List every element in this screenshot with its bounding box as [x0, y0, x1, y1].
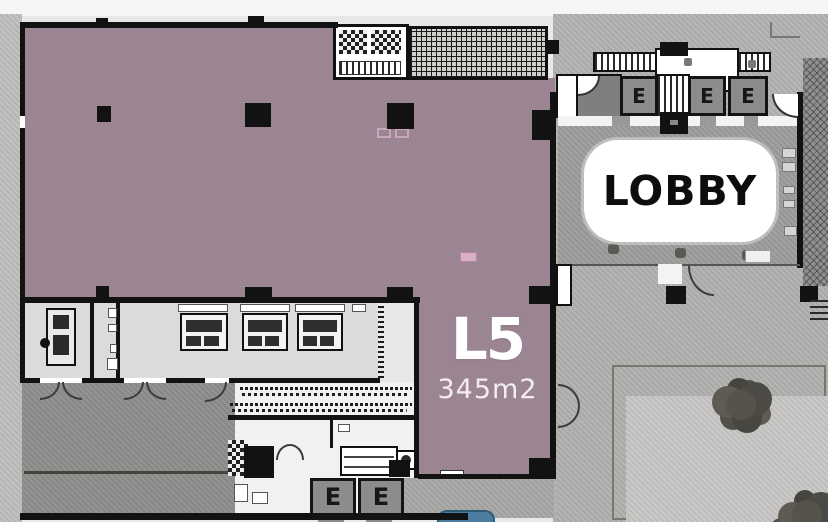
unit-highlight-marker: [460, 252, 477, 262]
skylight-grille: [408, 26, 548, 80]
shelf-unit: [110, 344, 117, 353]
column: [97, 106, 111, 122]
wall-segment: [551, 286, 556, 478]
elevator-cab: E: [728, 76, 768, 116]
column: [245, 287, 272, 302]
column: [666, 286, 686, 304]
boundary-wall-hatch: [803, 58, 828, 286]
bench: [783, 200, 795, 208]
elevator-label: E: [632, 84, 646, 108]
floor-plan: E E L5 345m2 E: [0, 0, 828, 522]
shelf-unit: [108, 308, 117, 318]
wall-segment: [414, 302, 419, 478]
elevator-cab: E: [310, 478, 356, 516]
wall-segment: [90, 302, 94, 378]
steps: [810, 300, 828, 320]
workbench: [180, 313, 228, 351]
wall-segment: [20, 513, 235, 520]
stair-treads: [339, 61, 401, 75]
equipment-tag: [240, 304, 290, 312]
wall-segment: [660, 42, 688, 56]
shelf-unit: [107, 358, 118, 370]
wall-segment: [228, 513, 468, 520]
bench: [782, 148, 796, 158]
equipment-tag: [178, 304, 228, 312]
plant-marker: [748, 60, 756, 68]
elevator-label: E: [325, 483, 341, 511]
elevator-cab: E: [688, 76, 726, 116]
lobby-label-pill: LOBBY: [584, 140, 776, 242]
wall-segment: [744, 116, 758, 126]
column: [248, 16, 264, 25]
tree-icon: [726, 390, 756, 420]
equipment-cabinet: [46, 308, 76, 366]
unit-area: 345m2: [437, 374, 537, 405]
annotation-text-column: [378, 306, 384, 378]
wall-segment: [20, 297, 420, 303]
lobby-seating: [745, 250, 771, 263]
column: [387, 287, 413, 302]
wall-segment: [20, 22, 25, 382]
elevator-cab: E: [620, 76, 658, 116]
workbench: [297, 313, 343, 351]
column: [96, 286, 109, 302]
bench: [782, 162, 796, 172]
elevator-cab: E: [358, 478, 404, 516]
elevator-door-block: [660, 112, 688, 134]
column: [389, 460, 410, 477]
column: [545, 40, 559, 54]
column: [96, 18, 108, 27]
unit-l5-area-north[interactable]: [22, 24, 333, 302]
unit-fixture-outline: [395, 128, 409, 138]
wall-segment: [612, 116, 630, 126]
fixture: [338, 424, 350, 432]
pipe-fitting: [40, 338, 50, 348]
door-opening: [658, 264, 682, 284]
wall-segment: [330, 420, 333, 448]
unit-fixture-outline: [377, 128, 391, 138]
elevator-label: E: [700, 84, 714, 108]
wall-segment: [228, 415, 418, 420]
wall-segment: [20, 22, 338, 28]
annotation-text-row: [240, 386, 412, 397]
column: [387, 103, 414, 129]
door-opening: [20, 116, 25, 128]
step-outline: [770, 22, 800, 38]
bench: [784, 226, 797, 236]
fixture: [252, 492, 268, 504]
counter-block: [244, 446, 274, 478]
fixture: [234, 484, 248, 502]
ramp-edge-line: [24, 471, 233, 474]
workbench: [242, 313, 288, 351]
unit-name: L5: [451, 310, 524, 368]
lobby-label: LOBBY: [603, 167, 757, 215]
column-dot: [675, 248, 686, 258]
annotation-text-row: [230, 402, 412, 413]
column-dot: [608, 244, 619, 254]
elevator-label: E: [373, 483, 389, 511]
ramp-area: [22, 382, 235, 518]
stair-room-tiles: [371, 30, 401, 54]
vestibule: [556, 74, 578, 118]
door-opening: [556, 264, 572, 306]
equipment-tag: [352, 304, 366, 312]
shelf-unit: [108, 324, 117, 332]
left-sidewalk: [0, 14, 22, 522]
wall-segment: [700, 116, 716, 126]
stair-room-tiles: [339, 30, 367, 54]
column: [532, 110, 556, 140]
balcony-railing: [593, 52, 657, 72]
bench: [783, 186, 795, 194]
unit-label-block: L5 345m2: [420, 310, 555, 428]
unit-l5-area-east[interactable]: [333, 78, 555, 302]
tree-icon: [792, 500, 822, 522]
column: [245, 103, 271, 127]
elevator-label: E: [741, 84, 755, 108]
plant-marker: [684, 58, 692, 66]
equipment-tag: [295, 304, 345, 312]
